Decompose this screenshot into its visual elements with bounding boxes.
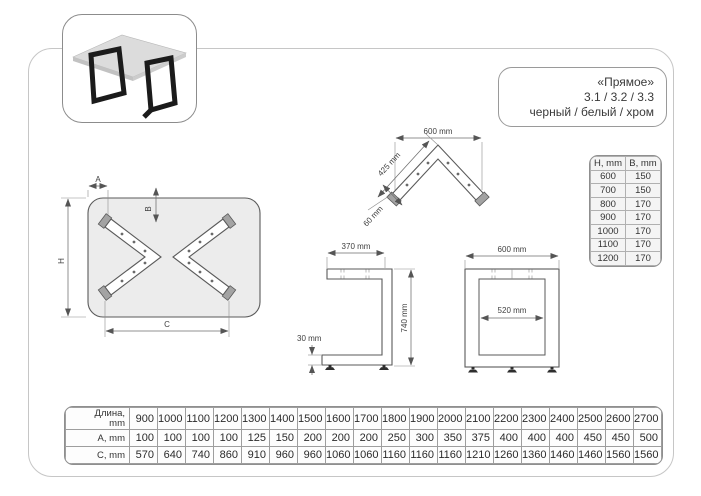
size-table-cell: 125: [242, 430, 270, 447]
length-label-line2: mm: [66, 419, 125, 429]
side-profile: [322, 269, 392, 365]
size-row-c: C, mm 5706407408609109609601060106011601…: [66, 447, 662, 464]
hb-table-cell: 170: [626, 211, 661, 225]
size-table-cell: 1800: [382, 408, 410, 430]
dim-front-inner: 520 mm: [498, 306, 527, 315]
top-view-drawing: H A B C: [55, 165, 273, 357]
front-foot-left: [468, 367, 478, 373]
size-table-cell: 1560: [606, 447, 634, 464]
hb-table-cell: 170: [626, 197, 661, 211]
catalog-sheet: «Прямое» 3.1 / 3.2 / 3.3 черный / белый …: [0, 0, 701, 496]
size-table-cell: 1100: [186, 408, 214, 430]
dim-corner-profile: 60 mm: [362, 204, 385, 228]
size-table-cell: 250: [382, 430, 410, 447]
hb-table-row: 1200170: [591, 252, 661, 266]
size-table-cell: 400: [522, 430, 550, 447]
size-row-length-header: Длина, mm: [66, 408, 130, 430]
size-table-cell: 2200: [494, 408, 522, 430]
hb-table-row: 900170: [591, 211, 661, 225]
size-table-cell: 740: [186, 447, 214, 464]
size-table-cell: 1400: [270, 408, 298, 430]
size-table-cell: 1560: [634, 447, 662, 464]
size-table-cell: 1260: [494, 447, 522, 464]
size-table-cell: 960: [270, 447, 298, 464]
corner-bracket-body: [392, 145, 484, 200]
size-table-cell: 200: [354, 430, 382, 447]
size-table-cell: 2600: [606, 408, 634, 430]
dim-corner-arm: 425 mm: [376, 150, 403, 178]
size-table-cell: 2000: [438, 408, 466, 430]
hb-table-row: 1100170: [591, 238, 661, 252]
hb-table-cell: 150: [626, 170, 661, 184]
size-table-cell: 150: [270, 430, 298, 447]
front-view-drawing: 600 mm 520 mm: [453, 243, 580, 380]
size-table-cell: 2700: [634, 408, 662, 430]
size-table-cell: 1200: [214, 408, 242, 430]
front-foot-right: [547, 367, 557, 373]
size-table-cell: 1500: [298, 408, 326, 430]
size-table-cell: 2300: [522, 408, 550, 430]
product-colors: черный / белый / хром: [530, 105, 655, 120]
side-foot-left: [325, 365, 335, 370]
size-table-cell: 1700: [354, 408, 382, 430]
size-table-cell: 200: [298, 430, 326, 447]
size-table-cell: 910: [242, 447, 270, 464]
size-table-cell: 1000: [158, 408, 186, 430]
size-table-cell: 2100: [466, 408, 494, 430]
size-table-cell: 900: [130, 408, 158, 430]
dim-side-depth: 370 mm: [342, 242, 371, 251]
size-table-cell: 2400: [550, 408, 578, 430]
size-row-length: Длина, mm 900100011001200130014001500160…: [66, 408, 662, 430]
size-table-cell: 570: [130, 447, 158, 464]
size-table-cell: 1460: [578, 447, 606, 464]
hb-table-cell: 800: [591, 197, 626, 211]
hb-header-h: H, mm: [591, 157, 626, 171]
dim-label-h: H: [57, 258, 66, 264]
size-table-cell: 100: [214, 430, 242, 447]
size-row-a-header: A, mm: [66, 430, 130, 447]
size-table-cell: 1460: [550, 447, 578, 464]
hb-table: H, mm B, mm 6001507001508001709001701000…: [589, 155, 662, 267]
size-table-cell: 960: [298, 447, 326, 464]
size-table-cell: 375: [466, 430, 494, 447]
product-photo-illustration: [63, 15, 196, 122]
size-table-cell: 860: [214, 447, 242, 464]
size-table-cell: 1160: [410, 447, 438, 464]
hb-table-cell: 700: [591, 184, 626, 198]
product-name: «Прямое»: [597, 75, 654, 90]
size-table-cell: 300: [410, 430, 438, 447]
dim-label-a: A: [95, 175, 101, 184]
size-table-cell: 1300: [242, 408, 270, 430]
hb-table-body: 6001507001508001709001701000170110017012…: [591, 170, 661, 265]
desk-leg-foot: [144, 110, 151, 117]
hb-table-row: 800170: [591, 197, 661, 211]
dim-side-height: 740 mm: [400, 303, 409, 332]
hb-table-cell: 600: [591, 170, 626, 184]
size-table: Длина, mm 900100011001200130014001500160…: [64, 406, 663, 465]
side-view-drawing: 370 mm 740 mm 30 mm: [295, 240, 440, 380]
dim-label-c: C: [164, 320, 170, 329]
size-table-cell: 450: [578, 430, 606, 447]
product-models: 3.1 / 3.2 / 3.3: [584, 90, 654, 105]
hb-table-header-row: H, mm B, mm: [591, 157, 661, 171]
size-table-cell: 400: [494, 430, 522, 447]
size-table-cell: 640: [158, 447, 186, 464]
title-box: «Прямое» 3.1 / 3.2 / 3.3 черный / белый …: [498, 67, 667, 127]
dim-label-b: B: [144, 206, 153, 211]
size-table-cell: 1900: [410, 408, 438, 430]
product-photo-box: [62, 14, 197, 123]
size-table-cell: 1060: [326, 447, 354, 464]
hb-table-row: 600150: [591, 170, 661, 184]
size-row-a: A, mm 1001001001001251502002002002503003…: [66, 430, 662, 447]
size-table-cell: 1210: [466, 447, 494, 464]
hb-table-row: 1000170: [591, 224, 661, 238]
dim-side-bottom: 30 mm: [297, 334, 322, 343]
hb-table-cell: 170: [626, 252, 661, 266]
hb-table-cell: 1100: [591, 238, 626, 252]
size-table-cell: 450: [606, 430, 634, 447]
hb-table-cell: 150: [626, 184, 661, 198]
side-foot-right: [379, 365, 389, 370]
size-table-cell: 400: [550, 430, 578, 447]
size-table-cell: 350: [438, 430, 466, 447]
corner-bracket-drawing: 600 mm 425 mm 60 mm: [330, 118, 500, 230]
hb-header-b: B, mm: [626, 157, 661, 171]
front-frame-inner: [479, 279, 545, 355]
hb-table-row: 700150: [591, 184, 661, 198]
dim-front-outer: 600 mm: [498, 245, 527, 254]
hb-table-cell: 1200: [591, 252, 626, 266]
size-table-cell: 500: [634, 430, 662, 447]
front-foot-center: [507, 367, 517, 373]
size-table-cell: 1060: [354, 447, 382, 464]
size-table-cell: 1600: [326, 408, 354, 430]
hb-table-cell: 1000: [591, 224, 626, 238]
size-table-cell: 1160: [382, 447, 410, 464]
hb-table-cell: 900: [591, 211, 626, 225]
hb-table-cell: 170: [626, 224, 661, 238]
size-table-cell: 100: [186, 430, 214, 447]
size-table-cell: 1160: [438, 447, 466, 464]
hb-table-cell: 170: [626, 238, 661, 252]
dim-corner-width: 600 mm: [424, 127, 453, 136]
size-table-cell: 2500: [578, 408, 606, 430]
size-row-c-header: C, mm: [66, 447, 130, 464]
size-table-cell: 100: [130, 430, 158, 447]
size-table-cell: 1360: [522, 447, 550, 464]
size-table-cell: 200: [326, 430, 354, 447]
size-table-cell: 100: [158, 430, 186, 447]
